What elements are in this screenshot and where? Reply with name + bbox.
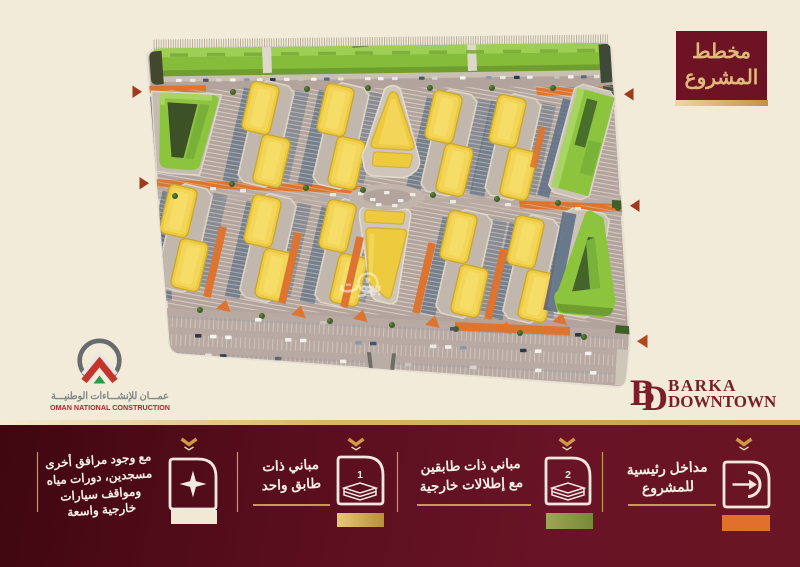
svg-text:عمـــان للإنشـــاءات الوطنيـــ: عمـــان للإنشـــاءات الوطنيـــة [51, 391, 169, 402]
svg-text:2: 2 [565, 469, 571, 481]
svg-text:1: 1 [357, 469, 363, 481]
svg-text:بيوت: بيوت [339, 274, 382, 298]
svg-text:OMAN NATIONAL CONSTRUCTION: OMAN NATIONAL CONSTRUCTION [50, 403, 170, 412]
